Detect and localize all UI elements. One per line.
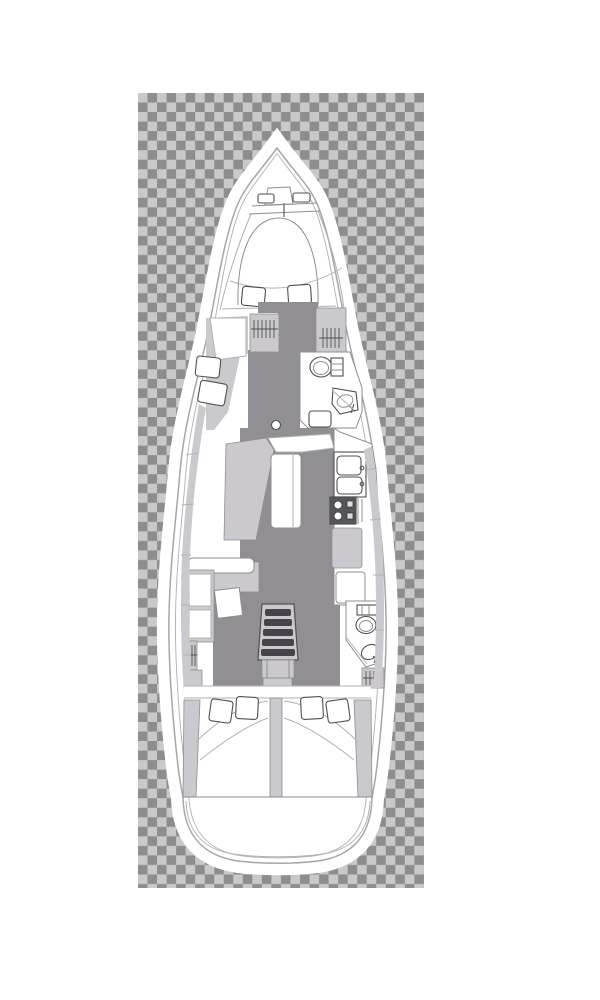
windlass-starboard <box>293 193 310 202</box>
port-cabin-pillow-2 <box>235 696 258 719</box>
step-2 <box>264 619 292 626</box>
aft-head-toilet <box>356 617 376 634</box>
screenshot-canvas <box>0 0 600 1000</box>
stove-burner-1 <box>334 501 342 509</box>
port-wardrobe-interior <box>210 318 246 360</box>
starboard-cabin-pillow-2 <box>326 699 351 724</box>
stove-burner-2 <box>334 512 342 520</box>
owner-cabin-seat-2 <box>197 380 227 406</box>
galley-fridge <box>332 528 362 568</box>
starboard-wardrobe-hangers <box>319 328 343 348</box>
windlass-port <box>258 194 274 203</box>
v-berth-pillow-starboard <box>287 284 311 305</box>
walkway-fwd2 <box>278 305 317 354</box>
port-cabinet-door-1 <box>189 574 211 606</box>
step-5 <box>261 649 295 656</box>
stove-knob-2 <box>347 513 353 519</box>
step-3 <box>263 629 293 636</box>
galley-sink-2 <box>337 477 362 494</box>
port-cabin-pillow-1 <box>209 699 234 724</box>
step-1 <box>265 609 291 616</box>
port-cabinet-door-2 <box>189 610 211 638</box>
stove-knob-1 <box>347 501 353 507</box>
salon-table <box>271 454 301 528</box>
aft-head-shelf <box>357 605 377 615</box>
aft-cabin-divider <box>270 698 282 797</box>
starboard-cabin-pillow-1 <box>300 696 323 719</box>
forward-head-step <box>309 411 331 427</box>
owner-cabin-seat-1 <box>195 356 221 378</box>
galley-sink-1 <box>337 456 361 475</box>
aft-bulkhead <box>184 686 371 698</box>
companionway <box>258 604 298 688</box>
forward-head-cistern <box>331 358 343 376</box>
galley-low-counter <box>336 572 365 603</box>
salon-cup-holder <box>272 421 281 430</box>
deck-plan-illustration <box>0 0 600 1000</box>
nav-desk <box>214 588 242 619</box>
walkway-corridor <box>248 350 300 430</box>
step-4 <box>262 639 294 646</box>
